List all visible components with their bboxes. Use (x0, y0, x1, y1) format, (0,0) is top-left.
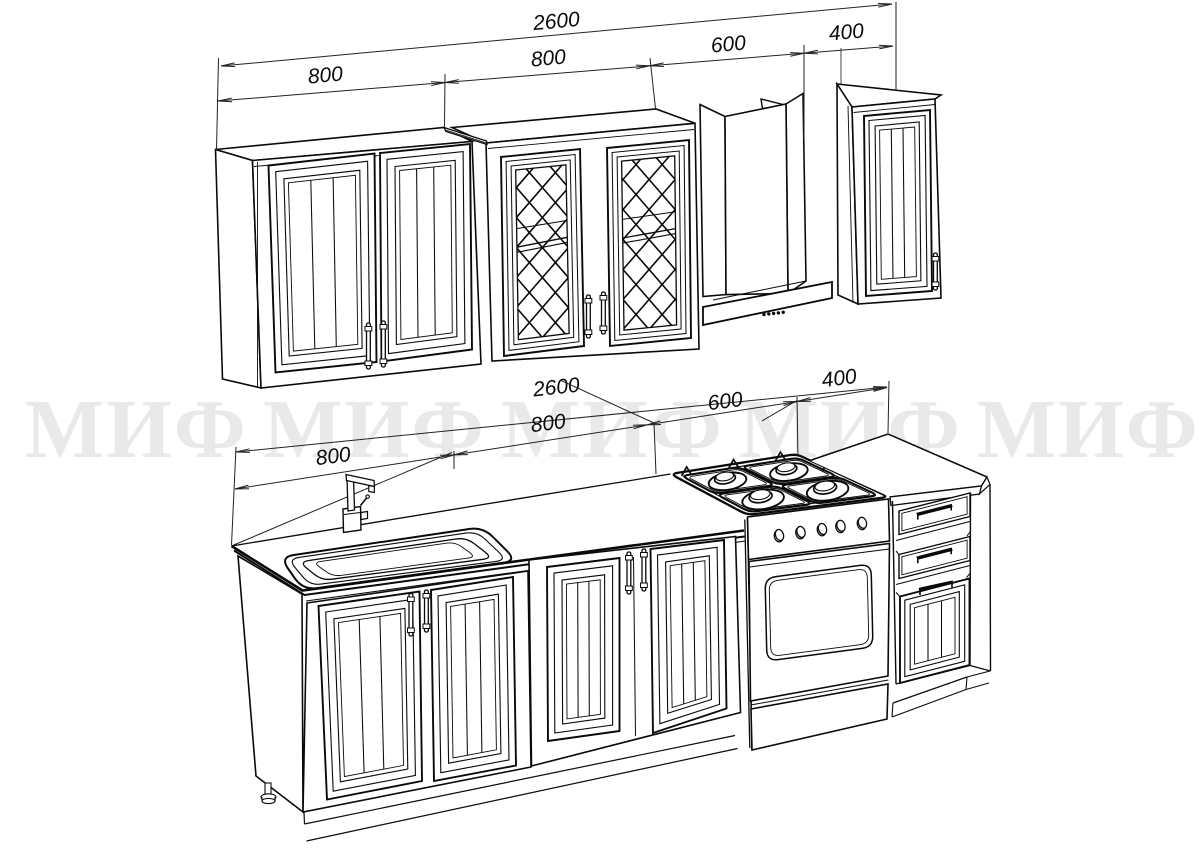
svg-text:800: 800 (530, 45, 567, 71)
svg-text:800: 800 (314, 443, 352, 470)
svg-text:2600: 2600 (531, 8, 581, 35)
svg-text:600: 600 (706, 388, 744, 415)
svg-text:600: 600 (710, 31, 747, 57)
svg-text:МИФ: МИФ (25, 383, 248, 476)
svg-text:800: 800 (529, 410, 567, 437)
svg-text:800: 800 (307, 62, 344, 88)
svg-text:МИФ: МИФ (263, 383, 486, 476)
svg-text:400: 400 (820, 365, 858, 392)
svg-text:МИФ: МИФ (977, 383, 1200, 476)
svg-text:400: 400 (828, 19, 865, 45)
